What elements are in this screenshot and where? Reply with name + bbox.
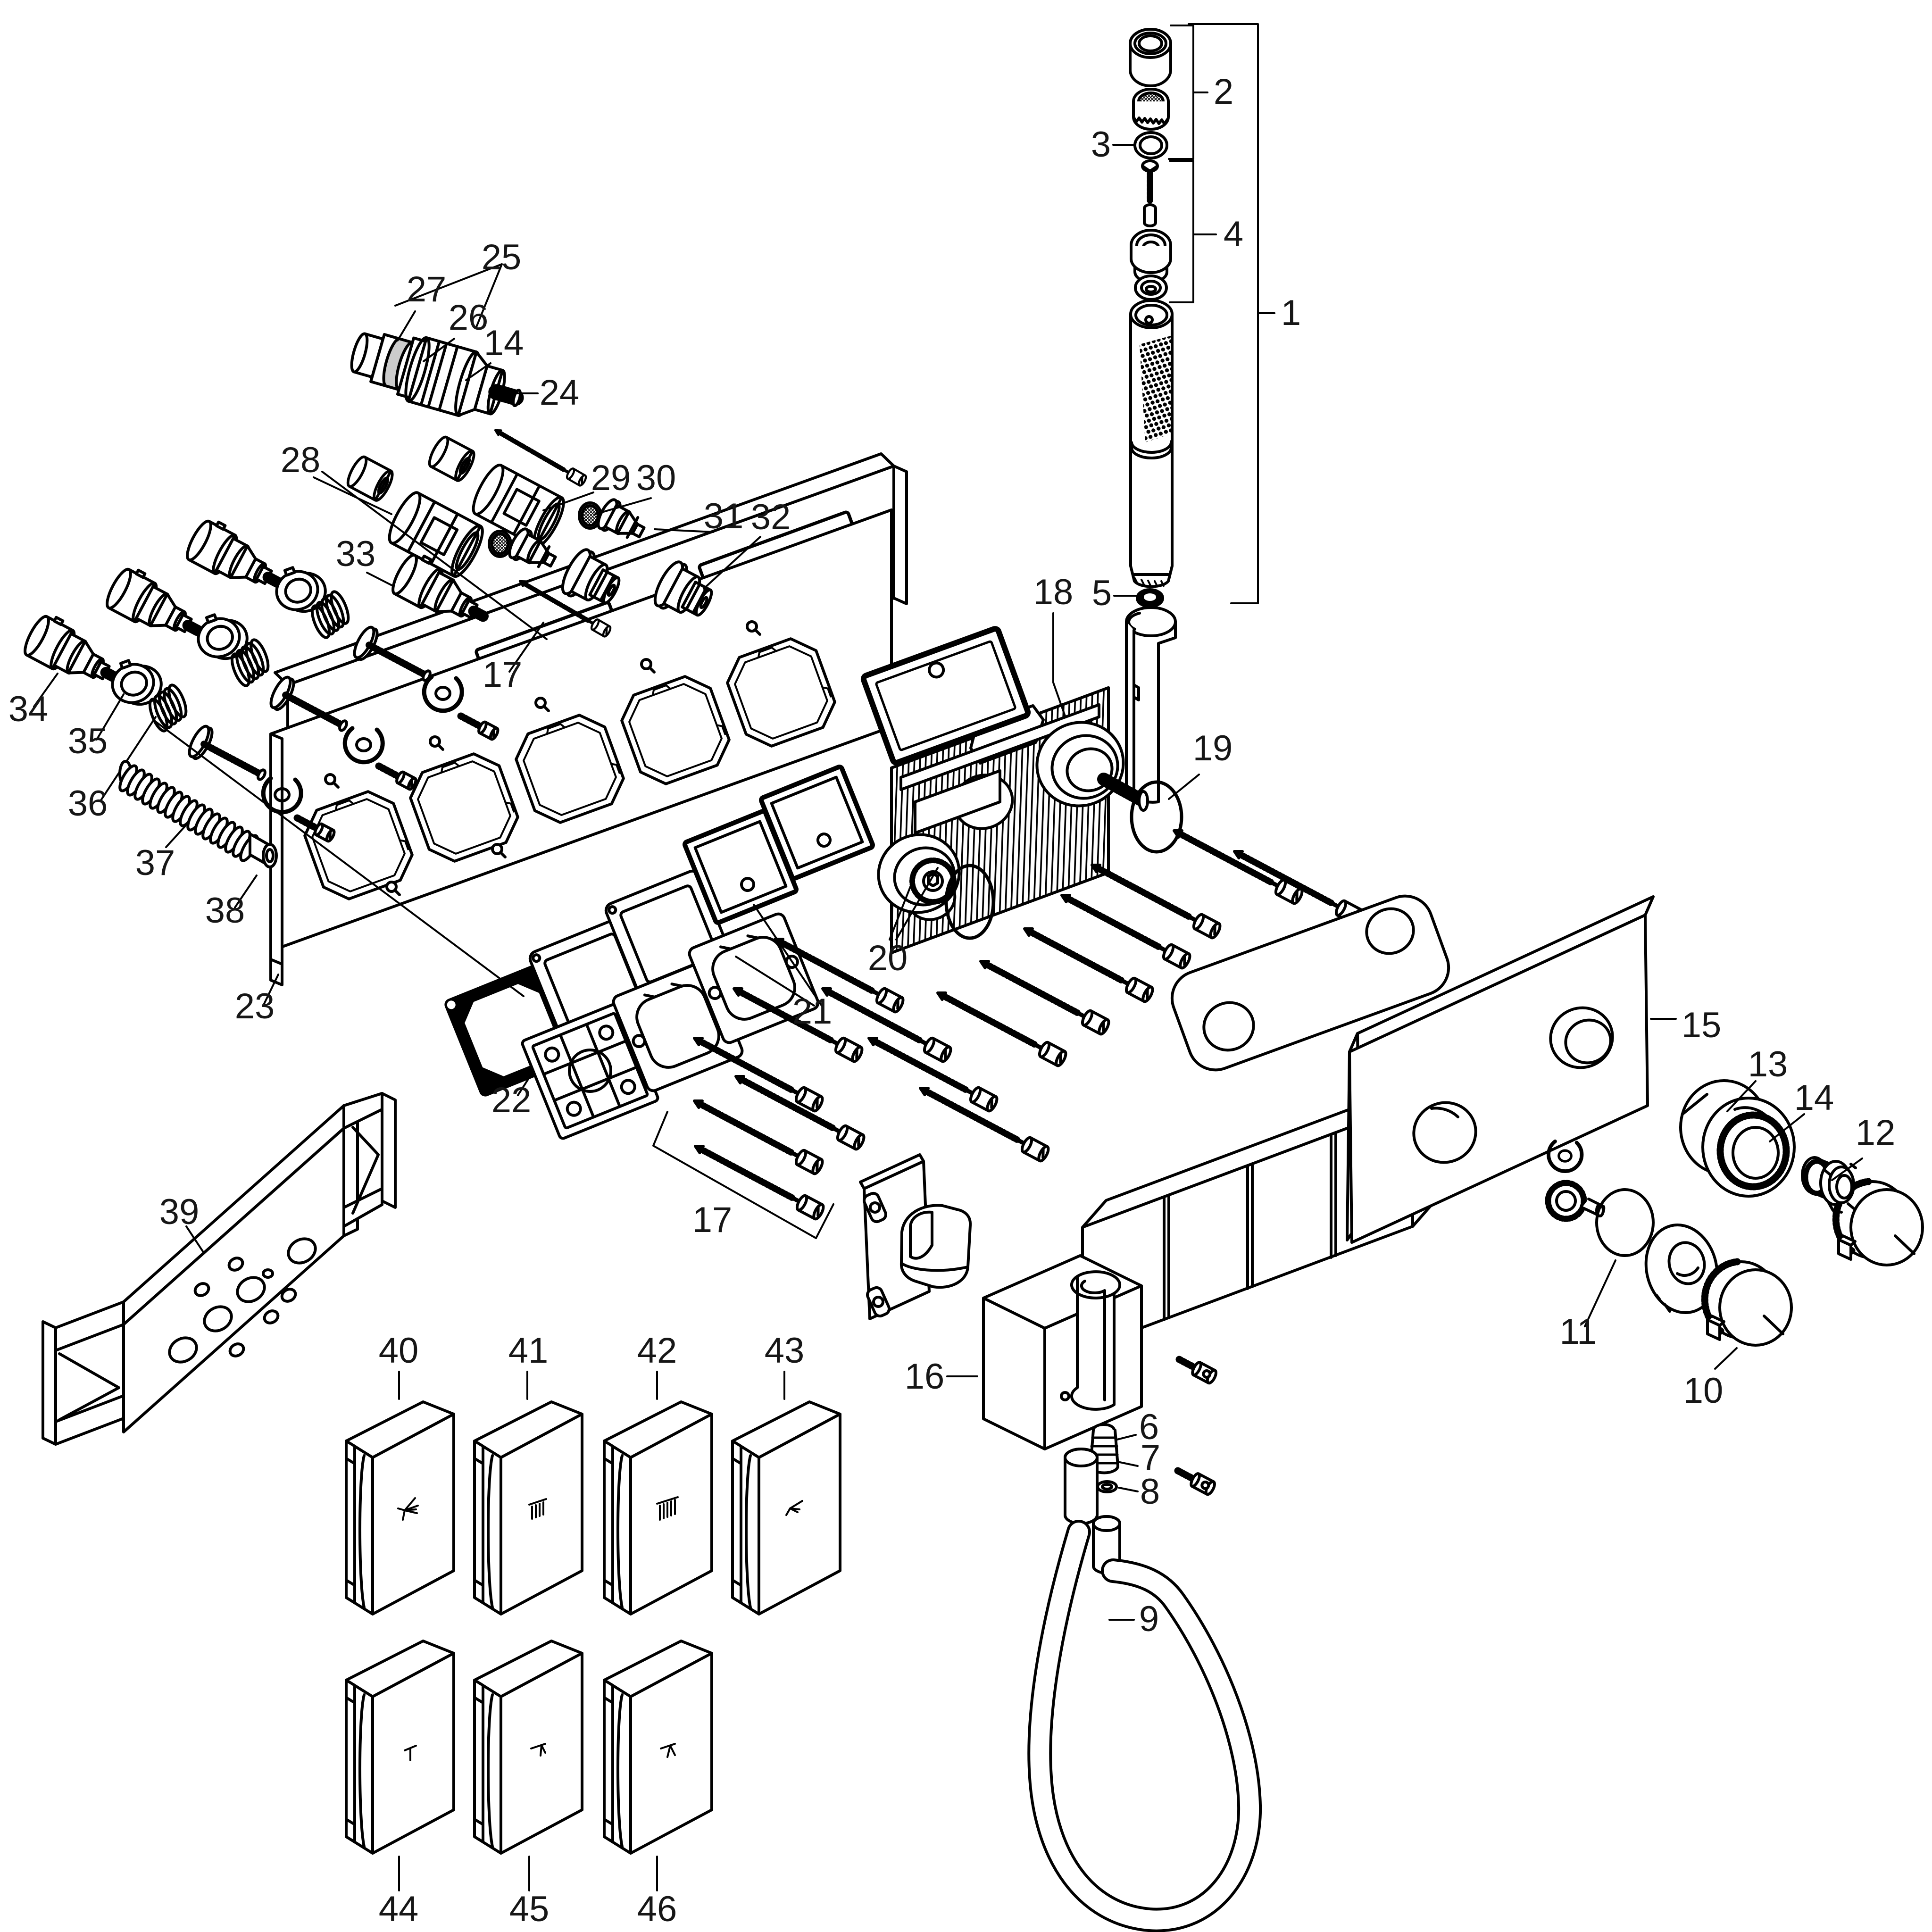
- svg-text:8: 8: [1140, 1472, 1160, 1512]
- svg-text:39: 39: [159, 1192, 200, 1232]
- svg-text:13: 13: [1748, 1044, 1788, 1084]
- svg-text:45: 45: [509, 1889, 550, 1929]
- svg-text:46: 46: [637, 1889, 677, 1929]
- svg-text:40: 40: [379, 1331, 419, 1371]
- svg-text:31: 31: [704, 496, 744, 536]
- svg-text:28: 28: [281, 440, 321, 480]
- svg-text:33: 33: [336, 534, 376, 574]
- svg-text:20: 20: [868, 938, 908, 978]
- svg-text:16: 16: [905, 1357, 945, 1397]
- svg-text:14: 14: [484, 323, 524, 363]
- svg-text:27: 27: [407, 269, 447, 309]
- svg-text:30: 30: [636, 458, 676, 498]
- svg-text:14: 14: [1794, 1078, 1834, 1118]
- svg-text:17: 17: [692, 1200, 733, 1240]
- svg-text:21: 21: [792, 991, 833, 1032]
- svg-text:5: 5: [1092, 573, 1112, 613]
- svg-text:19: 19: [1193, 728, 1233, 768]
- svg-text:36: 36: [68, 783, 108, 824]
- svg-text:32: 32: [751, 497, 791, 537]
- svg-text:26: 26: [449, 298, 489, 338]
- svg-text:38: 38: [205, 891, 245, 931]
- svg-text:4: 4: [1224, 214, 1243, 254]
- svg-text:9: 9: [1139, 1599, 1159, 1639]
- svg-text:35: 35: [68, 721, 108, 761]
- svg-text:11: 11: [1560, 1312, 1597, 1352]
- svg-text:41: 41: [508, 1331, 549, 1371]
- svg-text:1: 1: [1281, 293, 1301, 333]
- svg-text:3: 3: [1091, 125, 1111, 165]
- svg-text:43: 43: [765, 1331, 805, 1371]
- svg-text:2: 2: [1214, 72, 1233, 112]
- svg-text:10: 10: [1683, 1371, 1724, 1411]
- svg-text:25: 25: [482, 237, 522, 277]
- svg-text:17: 17: [483, 655, 523, 695]
- svg-text:44: 44: [379, 1889, 419, 1929]
- svg-text:34: 34: [8, 689, 49, 729]
- svg-text:18: 18: [1033, 572, 1074, 612]
- svg-text:23: 23: [235, 986, 275, 1026]
- svg-text:15: 15: [1682, 1005, 1722, 1045]
- svg-text:37: 37: [135, 843, 175, 883]
- svg-text:22: 22: [491, 1080, 532, 1120]
- svg-text:29: 29: [591, 458, 631, 498]
- svg-text:24: 24: [540, 373, 580, 413]
- svg-text:42: 42: [637, 1331, 677, 1371]
- svg-text:12: 12: [1856, 1113, 1896, 1153]
